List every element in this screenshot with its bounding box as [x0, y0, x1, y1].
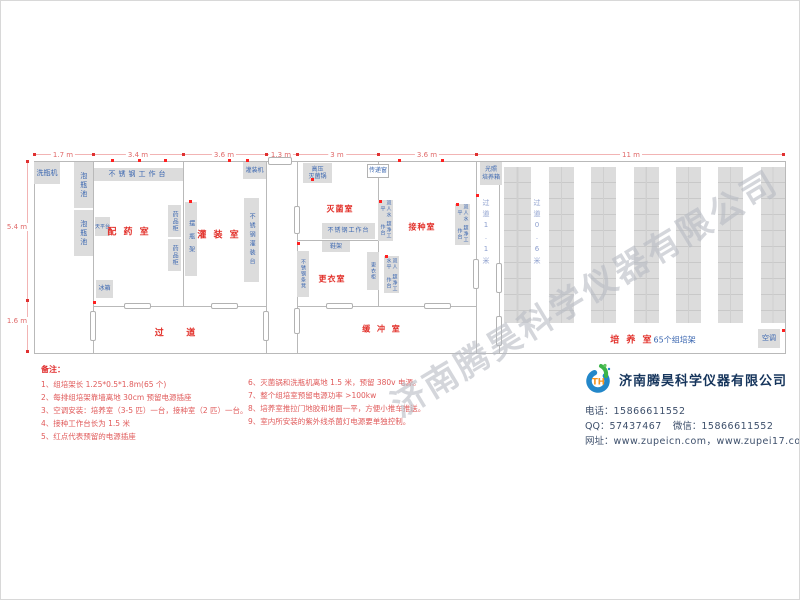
medicine-cabinet: 药品柜 — [168, 239, 181, 271]
autoclave: 高压 灭菌锅 — [303, 163, 332, 183]
notes-right-column: 6、灭菌锅和洗瓶机离地 1.5 米，预留 380v 电源。 7、整个组培室预留电… — [248, 376, 425, 428]
company-info: TH 济南腾昊科学仪器有限公司 电话：15866611552 QQ：574374… — [585, 363, 800, 449]
wall — [34, 161, 786, 162]
rack-column — [718, 167, 743, 323]
dim-label: 3 m — [328, 151, 346, 159]
locker: 更衣柜 — [367, 252, 379, 290]
dim-tick — [182, 153, 185, 156]
rack-column — [634, 167, 659, 323]
laminar-flow-bench: 双人水平 超净工作台 — [384, 256, 399, 293]
light-incubator-label: 光照 — [485, 166, 497, 173]
culture-room-label: 培 养 室 — [610, 336, 653, 346]
power-outlet-dot — [297, 242, 300, 245]
dim-label: 3.4 m — [126, 151, 150, 159]
power-outlet-dot — [398, 159, 401, 162]
note-item: 4、接种工作台长为 1.5 米 — [41, 417, 248, 430]
note-item: 7、整个组培室预留电源功率 >100kw — [248, 389, 425, 402]
dim-tick — [26, 299, 29, 302]
room-label-changing: 更衣室 — [319, 274, 346, 285]
door-symbol — [268, 157, 292, 165]
power-outlet-dot — [246, 159, 249, 162]
room-label-sterilization: 灭菌室 — [327, 204, 354, 215]
soaking-pool: 泡瓶池 — [74, 162, 93, 208]
svg-text:TH: TH — [592, 378, 605, 388]
company-logo: TH — [585, 363, 613, 400]
door-symbol — [90, 311, 96, 341]
dim-tick — [296, 153, 299, 156]
stainless-bench: 不锈钢条凳 — [297, 251, 309, 297]
light-incubator: 光照 培养箱 — [480, 162, 502, 185]
power-outlet-dot — [228, 159, 231, 162]
wechat-value: 15866611552 — [701, 421, 773, 432]
door-symbol — [294, 308, 300, 334]
wall — [183, 161, 184, 306]
pass-through-window: 传递窗 — [367, 164, 389, 178]
laminar-flow-bench-label: 双人水平 — [386, 256, 398, 272]
air-conditioner: 空调 — [758, 329, 780, 348]
wall — [34, 161, 35, 354]
company-name: 济南腾昊科学仪器有限公司 — [619, 374, 787, 389]
phone-label: 电话： — [585, 406, 614, 417]
room-label-inoculation: 接种室 — [409, 222, 436, 233]
dim-tick — [26, 350, 29, 353]
power-outlet-dot — [385, 255, 388, 258]
wall — [93, 306, 267, 307]
fridge: 冰箱 — [96, 280, 113, 298]
laminar-flow-bench-label: 超净工作台 — [457, 222, 469, 245]
wall — [785, 161, 786, 354]
power-outlet-dot — [782, 329, 785, 332]
power-outlet-dot — [476, 194, 479, 197]
corridor-1-1m-label: 过道1.1米 — [481, 199, 491, 281]
dim-tick — [265, 153, 268, 156]
stainless-worktop: 不锈钢工作台 — [94, 168, 183, 181]
dim-tick — [92, 153, 95, 156]
qq-label: QQ： — [585, 421, 609, 432]
note-item: 9、室内所安装的紫外线杀菌灯电源要单独控制。 — [248, 415, 425, 428]
laminar-flow-bench-label: 超净工作台 — [380, 218, 392, 241]
dim-label: 1.7 m — [51, 151, 75, 159]
dim-label: 3.6 m — [212, 151, 236, 159]
filling-machine: 灌装机 — [243, 162, 266, 179]
medicine-cabinet: 药品柜 — [168, 205, 181, 237]
room-label-culture: 培 养 室65个组培架 — [610, 333, 695, 346]
dim-tick — [475, 153, 478, 156]
dim-tick — [377, 153, 380, 156]
dim-tick — [782, 153, 785, 156]
floorplan-canvas: 1.7 m 3.4 m 3.6 m 1.3 m 3 m 3.6 m 11 m 5… — [0, 0, 800, 600]
door-symbol — [473, 259, 479, 289]
dim-label: 3.6 m — [415, 151, 439, 159]
laminar-flow-bench: 双人水平 超净工作台 — [378, 200, 393, 241]
wall — [34, 353, 786, 354]
laminar-flow-bench-label: 超净工作台 — [386, 272, 398, 293]
power-outlet-dot — [441, 159, 444, 162]
note-item: 3、空调安装：培养室（3-5 匹）一台，接种室（2 匹）一台。 — [41, 404, 248, 417]
room-label-corridor: 过 道 — [155, 326, 198, 339]
phone-value: 15866611552 — [614, 406, 686, 417]
company-web-line: 网址：www.zupeicn.com，www.zupei17.com — [585, 434, 800, 449]
power-outlet-dot — [379, 200, 382, 203]
power-outlet-dot — [189, 200, 192, 203]
rack-column — [761, 167, 785, 323]
soaking-pool: 泡瓶池 — [74, 210, 93, 256]
door-symbol — [124, 303, 151, 309]
note-item: 8、培养室推拉门地胶和地面一平，方便小推车推送。 — [248, 402, 425, 415]
door-symbol — [294, 206, 300, 234]
rack-column — [549, 167, 574, 323]
room-label-filling: 灌 装 室 — [197, 228, 240, 241]
wall — [476, 161, 477, 353]
rack-column — [591, 167, 616, 323]
rack-column — [676, 167, 701, 323]
laminar-flow-bench-label: 双人水平 — [457, 204, 469, 222]
door-symbol — [496, 316, 502, 346]
door-symbol — [263, 311, 269, 341]
power-outlet-dot — [93, 301, 96, 304]
note-item: 6、灭菌锅和洗瓶机离地 1.5 米，预留 380v 电源。 — [248, 376, 425, 389]
room-label-buffer: 缓 冲 室 — [362, 324, 402, 335]
dim-label: 11 m — [620, 151, 642, 159]
stainless-filling-table: 不锈钢灌装台 — [244, 198, 259, 282]
bottle-shelf: 摆瓶架 — [185, 202, 197, 276]
power-outlet-dot — [311, 178, 314, 181]
door-symbol — [424, 303, 451, 309]
qq-value: 57437467 — [609, 421, 661, 432]
dim-tick — [33, 153, 36, 156]
room-label-preparation: 配 药 室 — [107, 225, 150, 238]
light-incubator-label: 培养箱 — [482, 174, 500, 181]
notes-title: 备注： — [41, 363, 248, 376]
web-value: www.zupeicn.com，www.zupei17.com — [614, 436, 800, 447]
corridor-0-6m-label: 过道0.6米 — [532, 199, 542, 281]
notes-left-column: 备注： 1、组培架长 1.25*0.5*1.8m(65 个) 2、每排组培架靠墙… — [41, 363, 248, 443]
note-item: 1、组培架长 1.25*0.5*1.8m(65 个) — [41, 378, 248, 391]
culture-rack-count: 65个组培架 — [654, 336, 696, 345]
power-outlet-dot — [456, 203, 459, 206]
web-label: 网址： — [585, 436, 614, 447]
door-symbol — [496, 263, 502, 293]
shoe-rack: 鞋架 — [322, 241, 350, 252]
power-outlet-dot — [111, 159, 114, 162]
note-item: 5、红点代表预留的电源插座 — [41, 430, 248, 443]
dim-label: 1.6 m — [5, 317, 29, 325]
dim-label: 5.4 m — [5, 223, 29, 231]
door-symbol — [326, 303, 353, 309]
dim-tick — [26, 160, 29, 163]
company-phone-line: 电话：15866611552 — [585, 404, 800, 419]
power-outlet-dot — [138, 159, 141, 162]
door-symbol — [211, 303, 238, 309]
laminar-flow-bench: 双人水平 超净工作台 — [455, 204, 470, 245]
wechat-label: 微信： — [673, 421, 702, 432]
stainless-worktop: 不锈钢工作台 — [322, 223, 375, 239]
rack-column — [504, 167, 531, 323]
company-qq-line: QQ：57437467 微信：15866611552 — [585, 419, 800, 434]
note-item: 2、每排组培架靠墙离地 30cm 预留电源插座 — [41, 391, 248, 404]
power-outlet-dot — [164, 159, 167, 162]
bottle-washer: 洗瓶机 — [34, 162, 60, 184]
autoclave-label: 高压 — [311, 166, 323, 173]
